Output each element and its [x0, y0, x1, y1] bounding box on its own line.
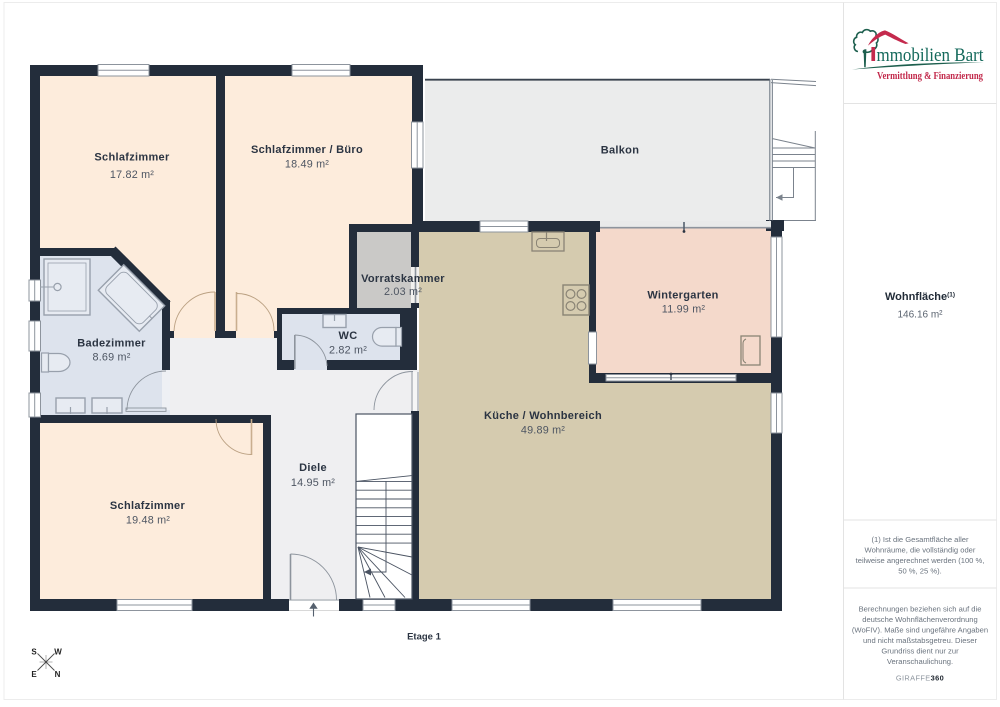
svg-text:Wintergarten: Wintergarten	[647, 290, 718, 302]
svg-text:S: S	[31, 648, 37, 657]
svg-text:und nicht maßstabsgetreu. Dies: und nicht maßstabsgetreu. Dieser	[863, 636, 977, 645]
svg-text:Diele: Diele	[299, 462, 327, 474]
svg-text:Schlafzimmer: Schlafzimmer	[110, 500, 186, 512]
svg-text:Schlafzimmer / Büro: Schlafzimmer / Büro	[251, 144, 363, 156]
svg-text:N: N	[55, 670, 61, 679]
svg-text:14.95 m²: 14.95 m²	[291, 477, 335, 489]
svg-text:17.82 m²: 17.82 m²	[110, 169, 154, 181]
svg-text:teilweise angerechnet werden (: teilweise angerechnet werden (100 %,	[856, 556, 985, 565]
svg-text:WC: WC	[339, 330, 358, 342]
svg-text:18.49 m²: 18.49 m²	[285, 159, 329, 171]
svg-text:Küche / Wohnbereich: Küche / Wohnbereich	[484, 410, 602, 422]
svg-text:Vermittlung & Finanzierung: Vermittlung & Finanzierung	[877, 71, 984, 82]
svg-text:146.16 m²: 146.16 m²	[897, 310, 943, 321]
svg-text:Schlafzimmer: Schlafzimmer	[94, 152, 170, 164]
svg-text:Vorratskammer: Vorratskammer	[361, 273, 445, 285]
svg-text:mmobilien Bart: mmobilien Bart	[877, 45, 985, 66]
svg-text:E: E	[31, 670, 37, 679]
svg-text:(1) Ist die Gesamtfläche aller: (1) Ist die Gesamtfläche aller	[871, 535, 969, 544]
svg-text:2.03 m²: 2.03 m²	[384, 286, 422, 298]
svg-text:Etage 1: Etage 1	[407, 631, 442, 642]
svg-text:(WoFIV). Maße sind ungefähre A: (WoFIV). Maße sind ungefähre Angaben	[852, 626, 988, 635]
svg-text:Wohnfläche(1): Wohnfläche(1)	[885, 291, 955, 303]
svg-text:8.69 m²: 8.69 m²	[92, 352, 130, 364]
svg-text:Berechnungen beziehen sich auf: Berechnungen beziehen sich auf die	[859, 605, 982, 614]
svg-text:Badezimmer: Badezimmer	[77, 338, 146, 350]
svg-text:GIRAFFE360: GIRAFFE360	[896, 673, 944, 682]
svg-text:Wohnräume, die vollständig ode: Wohnräume, die vollständig oder	[865, 546, 976, 555]
svg-text:deutsche Wohnflächenverordnung: deutsche Wohnflächenverordnung	[862, 615, 978, 624]
svg-text:49.89 m²: 49.89 m²	[521, 425, 565, 437]
svg-text:W: W	[54, 648, 62, 657]
svg-text:50 %, 25 %).: 50 %, 25 %).	[898, 567, 941, 576]
svg-text:11.99 m²: 11.99 m²	[662, 304, 706, 316]
svg-text:19.48 m²: 19.48 m²	[126, 515, 170, 527]
svg-text:Balkon: Balkon	[601, 145, 639, 157]
svg-text:Veranschaulichung.: Veranschaulichung.	[887, 657, 953, 666]
svg-text:Grundriss dient nur zur: Grundriss dient nur zur	[881, 647, 959, 656]
svg-text:2.82 m²: 2.82 m²	[329, 345, 367, 357]
